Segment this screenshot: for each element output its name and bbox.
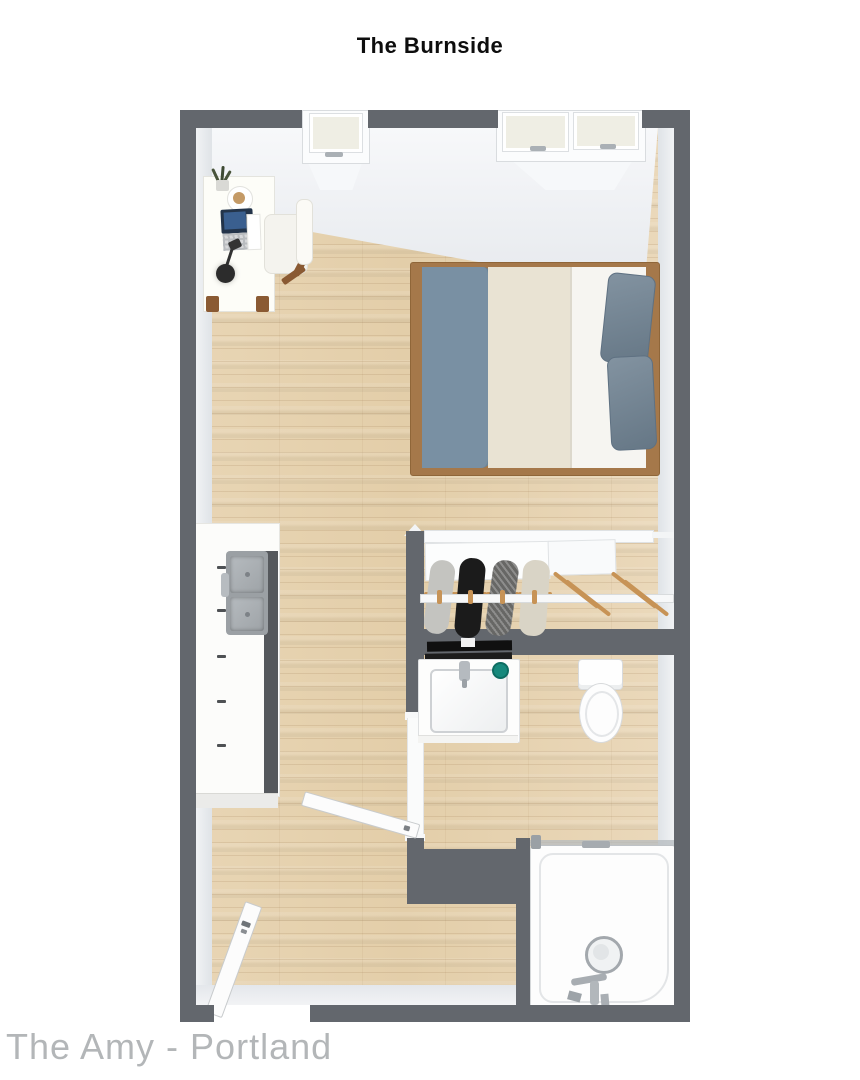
plant-pot (216, 180, 229, 191)
page-title: The Burnside (0, 33, 860, 59)
shower-door-handle (531, 835, 541, 849)
towel-bar-bracket (461, 638, 475, 647)
sink-drain (245, 612, 250, 617)
bathroom-faucet-icon (459, 661, 470, 681)
toothbrush-cup-icon (492, 662, 509, 679)
vanity-drawer (418, 735, 518, 743)
cabinet-handle (217, 655, 226, 658)
window-handle (530, 146, 546, 151)
hanger-hook (532, 590, 537, 604)
coffee-cup-inner (233, 192, 245, 204)
cabinet-handle (217, 744, 226, 747)
closet-sliding-door (548, 539, 617, 576)
door-handle (241, 920, 251, 928)
exterior-wall (180, 110, 302, 128)
hanger-hook (437, 590, 442, 604)
kitchen-counter-end (192, 793, 278, 808)
floor-plan-image: The Burnside (0, 0, 860, 1080)
hanger-hook (500, 590, 505, 604)
shower-pan-inner (539, 853, 669, 1003)
desk-leg (256, 296, 269, 312)
door-handle (403, 825, 410, 831)
kitchen-faucet-icon (221, 573, 229, 597)
cabinet-handle (217, 700, 226, 703)
shower-faucet-icon (590, 981, 599, 1005)
laptop-screen (224, 211, 247, 229)
exterior-wall (368, 110, 498, 128)
bathroom-wall (407, 849, 518, 904)
window-handle (600, 144, 616, 149)
pillow (607, 355, 658, 451)
chair-back (296, 199, 313, 265)
window-shade (310, 114, 362, 152)
bed-sheet-fold (570, 267, 572, 468)
bathroom-faucet-spout (462, 679, 467, 688)
pillow (599, 272, 656, 367)
desk-leg (206, 296, 219, 312)
exterior-wall (674, 110, 690, 1022)
door-handle (240, 929, 247, 935)
window-handle (325, 152, 343, 157)
closet-rod (420, 594, 674, 603)
bed-duvet (488, 267, 572, 468)
cabinet-handle (217, 566, 226, 569)
exterior-wall (180, 1005, 214, 1022)
cabinet-handle (217, 609, 226, 612)
exterior-wall (310, 1005, 690, 1022)
bed-blanket (422, 267, 491, 468)
closet-door-track (652, 532, 674, 538)
notepad-icon (246, 214, 261, 250)
desk-lamp-icon (216, 264, 235, 283)
watermark-text: The Amy - Portland (6, 1026, 332, 1068)
toilet-seat (585, 691, 619, 737)
shower-drain-inner (593, 944, 609, 960)
hanger-hook (468, 590, 473, 604)
shower-wall (516, 838, 530, 1008)
sink-drain (245, 572, 250, 577)
shower-door-handle (582, 841, 610, 848)
exterior-wall (180, 110, 196, 1022)
